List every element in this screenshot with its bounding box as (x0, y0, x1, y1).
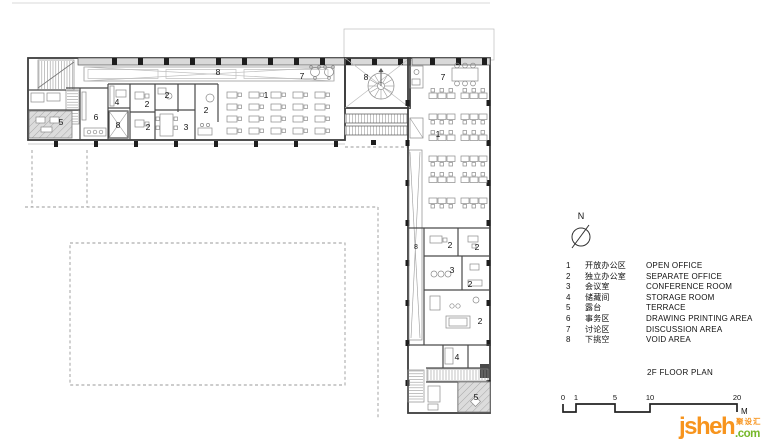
chair (449, 121, 453, 125)
roof-outline (344, 29, 494, 60)
chair (326, 117, 330, 121)
chair (463, 173, 467, 177)
chair (472, 131, 476, 135)
spiral-tread (383, 75, 388, 83)
open-office-desks-right (429, 89, 487, 209)
desk (438, 114, 446, 120)
logo-wordmark: jsheh (679, 414, 734, 440)
chair (238, 105, 242, 109)
desk (293, 116, 303, 122)
desk (293, 104, 303, 110)
column (254, 141, 258, 147)
chair (481, 89, 485, 93)
legend-zh: 独立办公室 (585, 272, 646, 283)
chair (449, 131, 453, 135)
chair (481, 131, 485, 135)
desk (479, 93, 487, 99)
chair (463, 121, 467, 125)
logo-chinese: 聚设汇 (736, 416, 762, 427)
chair (431, 205, 435, 209)
north-label: N (578, 211, 585, 221)
chair (449, 89, 453, 93)
room-label: 7 (441, 72, 446, 82)
room-label: 2 (145, 99, 150, 109)
legend-zh: 露台 (585, 303, 646, 314)
room-label: 2 (448, 240, 453, 250)
legend-en: CONFERENCE ROOM (646, 282, 776, 293)
chair (440, 89, 444, 93)
chair (463, 89, 467, 93)
void-strip (84, 67, 334, 81)
desk (470, 198, 478, 204)
chair (431, 89, 435, 93)
room-label: 2 (478, 316, 483, 326)
desk (470, 156, 478, 162)
desk (293, 92, 303, 98)
column (174, 141, 178, 147)
column (487, 260, 491, 266)
chair (304, 105, 308, 109)
logo-tld: .com (735, 428, 760, 440)
legend-number: 6 (566, 314, 585, 325)
chair (238, 117, 242, 121)
desk (479, 198, 487, 204)
chair (472, 205, 476, 209)
desk (438, 177, 446, 183)
room-label: 7 (300, 71, 305, 81)
legend-en: DISCUSSION AREA (646, 325, 776, 336)
chair (440, 121, 444, 125)
open-office-desks-left (227, 92, 330, 134)
legend-row: 8 下挑空 VOID AREA (566, 335, 776, 346)
chair (481, 173, 485, 177)
desk (249, 104, 259, 110)
column (112, 58, 117, 65)
scale-tick: 0 (561, 393, 565, 402)
legend-number: 2 (566, 272, 585, 283)
room-label: 5 (59, 117, 64, 127)
right-wing (406, 58, 491, 413)
desk (429, 93, 437, 99)
chair (282, 105, 286, 109)
room-label: 5 (474, 392, 479, 402)
chair (326, 105, 330, 109)
desk (479, 177, 487, 183)
desk (315, 116, 325, 122)
desk (470, 114, 478, 120)
legend-en: VOID AREA (646, 335, 776, 346)
column (242, 58, 247, 65)
scale-bar-line (563, 404, 737, 412)
column (371, 140, 376, 145)
spiral-stair (368, 68, 394, 99)
chair (440, 163, 444, 167)
chair (282, 117, 286, 121)
desk (271, 104, 281, 110)
desk (227, 92, 237, 98)
desk (461, 135, 469, 141)
page: 5 6 4 8 2 2 2 3 2 8 1 7 8 7 1 8 2 2 3 2 … (0, 0, 780, 446)
chair (472, 89, 476, 93)
column (294, 58, 299, 65)
room-label: 3 (450, 265, 455, 275)
desk (461, 156, 469, 162)
desk (470, 177, 478, 183)
column (164, 58, 169, 65)
column (487, 140, 491, 146)
desk (227, 128, 237, 134)
room-label: 1 (264, 90, 269, 100)
chair (304, 117, 308, 121)
chair (431, 121, 435, 125)
desk (293, 128, 303, 134)
stair-lower-left (408, 370, 424, 402)
desk (429, 156, 437, 162)
column (190, 58, 195, 65)
desk (438, 156, 446, 162)
chair (260, 105, 264, 109)
legend-en: DRAWING PRINTING AREA (646, 314, 776, 325)
chair (304, 129, 308, 133)
dashed-outlines (25, 150, 378, 418)
plan-title: 2F FLOOR PLAN (647, 368, 713, 377)
column (482, 58, 487, 65)
column (334, 141, 338, 147)
spiral-tread (384, 80, 392, 85)
chair (440, 173, 444, 177)
legend-en: OPEN OFFICE (646, 261, 776, 272)
chair (238, 129, 242, 133)
chair (260, 117, 264, 121)
room-label: 2 (165, 90, 170, 100)
legend-en: SEPARATE OFFICE (646, 272, 776, 283)
desk (429, 177, 437, 183)
legend-zh: 事务区 (585, 314, 646, 325)
column (372, 58, 377, 65)
chair (481, 163, 485, 167)
legend-number: 7 (566, 325, 585, 336)
scale-tick: 1 (574, 393, 578, 402)
desk (461, 93, 469, 99)
desk (249, 92, 259, 98)
chair (449, 205, 453, 209)
legend-en: TERRACE (646, 303, 776, 314)
room-label: 2 (204, 105, 209, 115)
column (406, 140, 410, 146)
chair (481, 121, 485, 125)
legend: 1 开放办公区 OPEN OFFICE 2 独立办公室 SEPARATE OFF… (566, 261, 776, 346)
column (134, 141, 138, 147)
desk (438, 93, 446, 99)
chair (463, 131, 467, 135)
chair (326, 93, 330, 97)
legend-row: 7 讨论区 DISCUSSION AREA (566, 325, 776, 336)
desk (470, 93, 478, 99)
spiral-tread (384, 88, 392, 93)
desk (461, 198, 469, 204)
stair-top-left (38, 60, 74, 90)
spiral-tread (375, 89, 380, 97)
legend-row: 2 独立办公室 SEPARATE OFFICE (566, 272, 776, 283)
desk (227, 104, 237, 110)
service-strip (410, 66, 423, 138)
spiral-tread (375, 75, 380, 83)
desk (271, 128, 281, 134)
column (214, 141, 218, 147)
column (487, 300, 491, 306)
desk (479, 135, 487, 141)
desk (447, 93, 455, 99)
desk (315, 104, 325, 110)
desk (470, 135, 478, 141)
column (94, 141, 98, 147)
desk (447, 156, 455, 162)
room-label: 8 (116, 120, 121, 130)
legend-zh: 会议室 (585, 282, 646, 293)
north-indicator: N (560, 206, 604, 256)
chair (481, 205, 485, 209)
legend-number: 8 (566, 335, 585, 346)
room-label: 4 (115, 97, 120, 107)
chair (449, 163, 453, 167)
column (216, 58, 221, 65)
legend-zh: 储藏间 (585, 293, 646, 304)
discussion-table (452, 63, 478, 86)
chair (440, 205, 444, 209)
floor-plan-drawing: 5 6 4 8 2 2 2 3 2 8 1 7 8 7 1 8 2 2 3 2 … (0, 0, 780, 446)
chair (282, 129, 286, 133)
desk (461, 177, 469, 183)
column (268, 58, 273, 65)
desk (315, 128, 325, 134)
chair (326, 129, 330, 133)
desk (447, 114, 455, 120)
desk (447, 198, 455, 204)
scale-tick: 20 (733, 393, 741, 402)
legend-row: 6 事务区 DRAWING PRINTING AREA (566, 314, 776, 325)
site-logo: jsheh 聚设汇 .com (679, 413, 779, 445)
desk (271, 92, 281, 98)
room-label: 2 (146, 122, 151, 132)
facade-band (412, 58, 490, 65)
column (430, 58, 435, 65)
desk (447, 135, 455, 141)
room-label: 8 (364, 72, 369, 82)
legend-number: 1 (566, 261, 585, 272)
column (487, 220, 491, 226)
room-label: 8 (216, 67, 221, 77)
desk (429, 198, 437, 204)
column (406, 100, 410, 106)
column (406, 380, 410, 386)
stair-band (427, 369, 488, 381)
chair (282, 93, 286, 97)
legend-zh: 开放办公区 (585, 261, 646, 272)
chair (238, 93, 242, 97)
chair (431, 131, 435, 135)
desk (438, 198, 446, 204)
chair (431, 173, 435, 177)
north-circle (572, 228, 590, 246)
chair (463, 163, 467, 167)
chair (304, 93, 308, 97)
desk (461, 114, 469, 120)
desk (479, 156, 487, 162)
room-label: 4 (455, 352, 460, 362)
column (294, 141, 298, 147)
legend-row: 4 储藏间 STORAGE ROOM (566, 293, 776, 304)
legend-row: 5 露台 TERRACE (566, 303, 776, 314)
desk (249, 116, 259, 122)
desk (447, 177, 455, 183)
chair (440, 131, 444, 135)
terrace-left (29, 111, 72, 138)
desk (249, 128, 259, 134)
room-label: 2 (468, 279, 473, 289)
desk (271, 116, 281, 122)
desk (479, 114, 487, 120)
legend-number: 4 (566, 293, 585, 304)
legend-row: 1 开放办公区 OPEN OFFICE (566, 261, 776, 272)
legend-number: 5 (566, 303, 585, 314)
column (320, 58, 325, 65)
column (54, 141, 58, 147)
chair (472, 173, 476, 177)
room-label: 8 (414, 244, 418, 251)
room-label: 6 (94, 112, 99, 122)
chair (431, 163, 435, 167)
columns (406, 58, 491, 386)
chair (472, 163, 476, 167)
desk (227, 116, 237, 122)
scale-tick: 10 (646, 393, 654, 402)
bridge (345, 114, 408, 135)
legend-zh: 讨论区 (585, 325, 646, 336)
room-label: 1 (436, 129, 441, 139)
column (138, 58, 143, 65)
legend-en: STORAGE ROOM (646, 293, 776, 304)
legend-zh: 下挑空 (585, 335, 646, 346)
chair (463, 205, 467, 209)
desk (315, 92, 325, 98)
room-label: 3 (184, 122, 189, 132)
scale-tick: 5 (613, 393, 617, 402)
chair (449, 173, 453, 177)
chair (260, 129, 264, 133)
junction-block (345, 58, 410, 147)
legend-row: 3 会议室 CONFERENCE ROOM (566, 282, 776, 293)
spiral-tread (370, 88, 378, 93)
chair (472, 121, 476, 125)
legend-number: 3 (566, 282, 585, 293)
room-labels: 5 6 4 8 2 2 2 3 2 8 1 7 8 7 1 8 2 2 3 2 … (59, 67, 483, 402)
desk (429, 114, 437, 120)
room-label: 2 (475, 242, 480, 252)
column (487, 100, 491, 106)
